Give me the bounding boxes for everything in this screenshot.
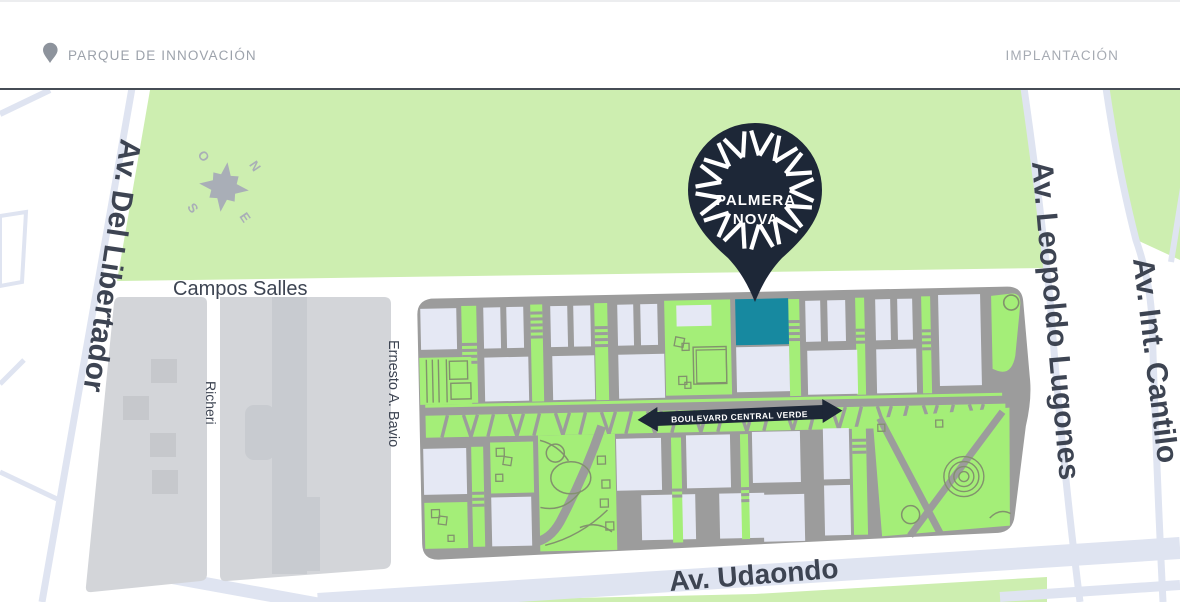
- svg-text:Ernesto A. Bavio: Ernesto A. Bavio: [385, 340, 401, 447]
- svg-text:PALMERA: PALMERA: [716, 192, 796, 209]
- svg-text:NOVA: NOVA: [733, 211, 779, 228]
- svg-text:Campos Salles: Campos Salles: [173, 278, 308, 300]
- svg-text:Richeri: Richeri: [203, 381, 219, 425]
- svg-text:PARQUE DE INNOVACIÓN: PARQUE DE INNOVACIÓN: [68, 48, 257, 63]
- svg-text:IMPLANTACIÓN: IMPLANTACIÓN: [1006, 48, 1119, 63]
